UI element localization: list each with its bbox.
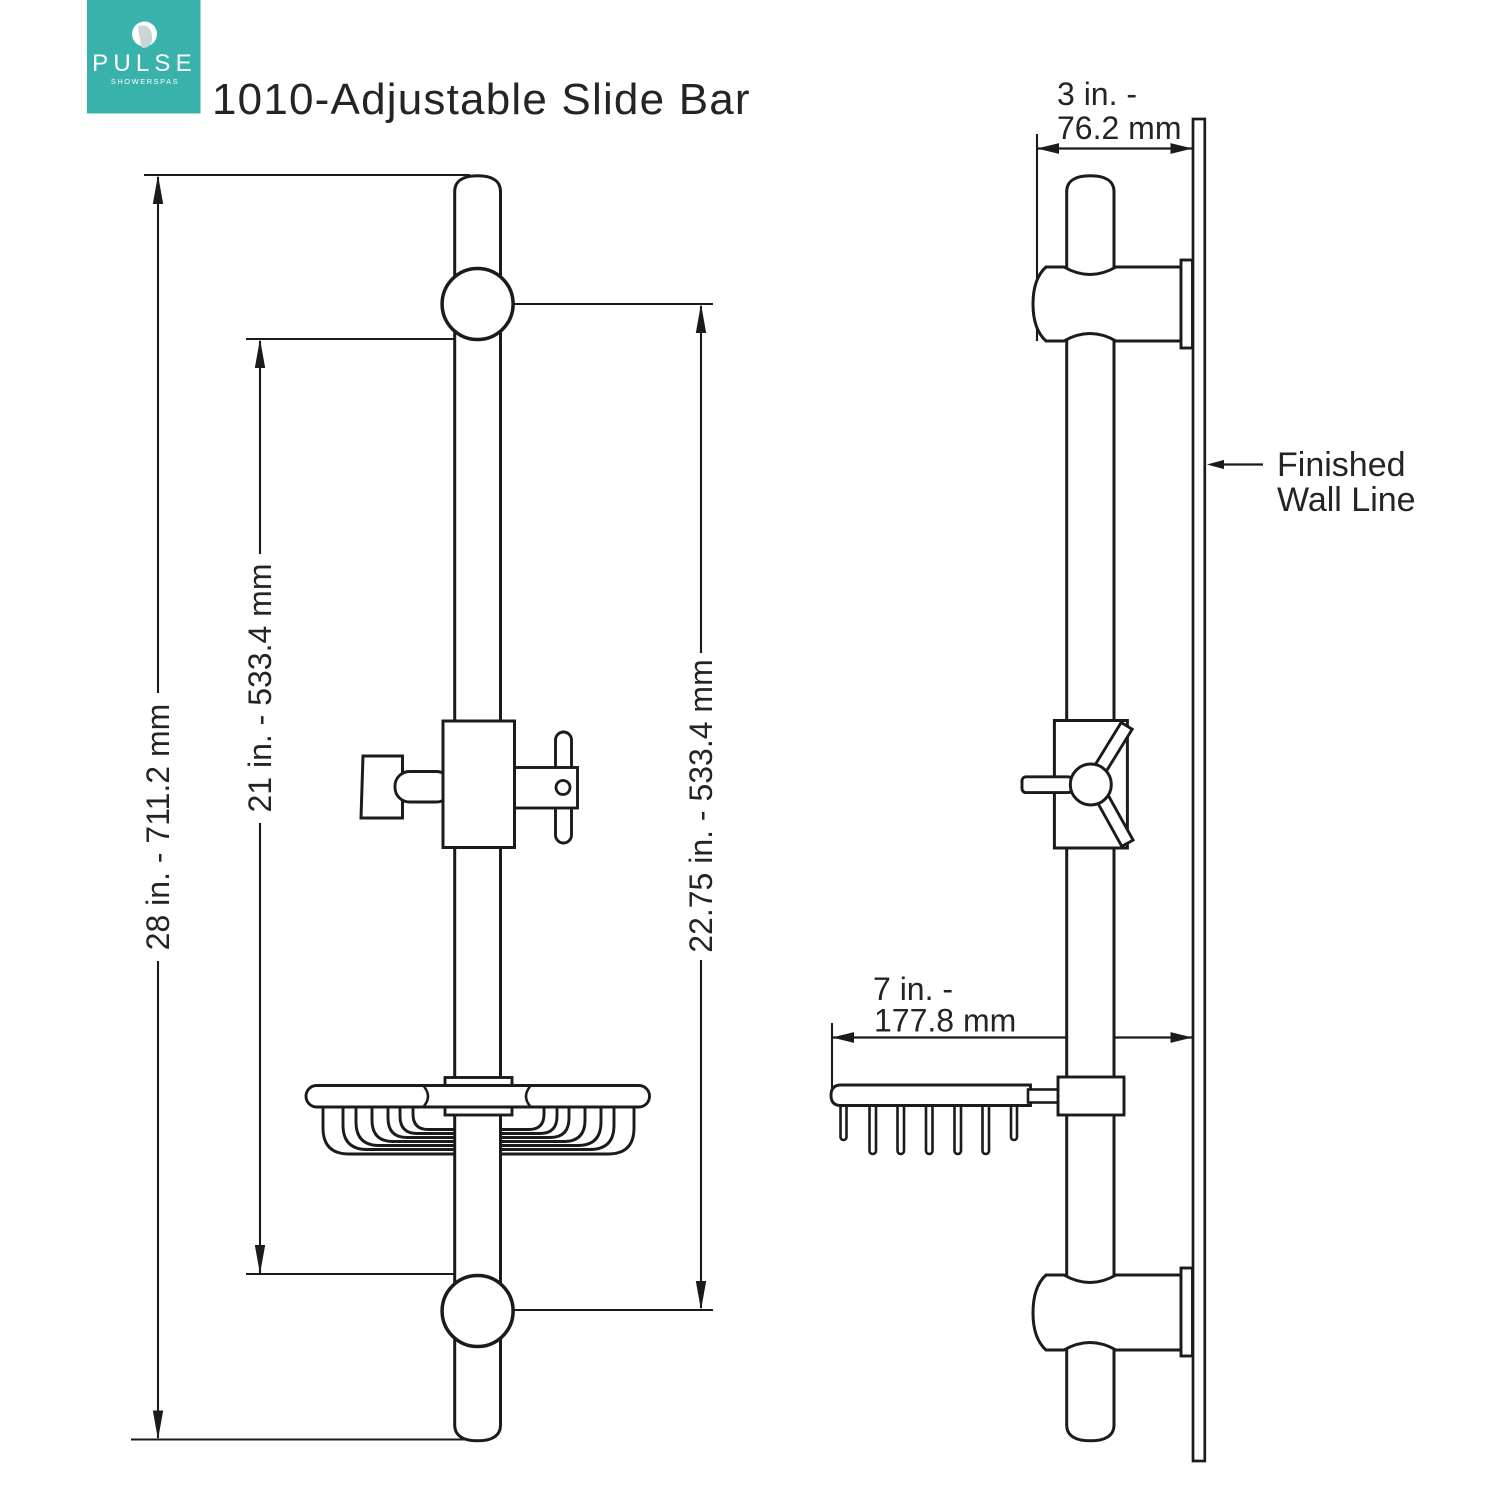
svg-text:22.75 in. - 533.4 mm: 22.75 in. - 533.4 mm (683, 659, 719, 952)
svg-text:177.8 mm: 177.8 mm (874, 1003, 1016, 1039)
svg-text:76.2 mm: 76.2 mm (1057, 110, 1181, 146)
svg-text:Wall Line: Wall Line (1277, 481, 1416, 519)
svg-text:28 in. - 711.2 mm: 28 in. - 711.2 mm (140, 704, 176, 951)
svg-text:1010-Adjustable Slide Bar: 1010-Adjustable Slide Bar (212, 75, 751, 124)
svg-text:3 in. -: 3 in. - (1057, 76, 1137, 112)
svg-text:Finished: Finished (1277, 446, 1406, 484)
svg-text:21 in. - 533.4 mm: 21 in. - 533.4 mm (242, 564, 278, 813)
svg-text:SHOWERSPAS: SHOWERSPAS (111, 77, 179, 86)
svg-text:PULSE: PULSE (92, 50, 197, 77)
